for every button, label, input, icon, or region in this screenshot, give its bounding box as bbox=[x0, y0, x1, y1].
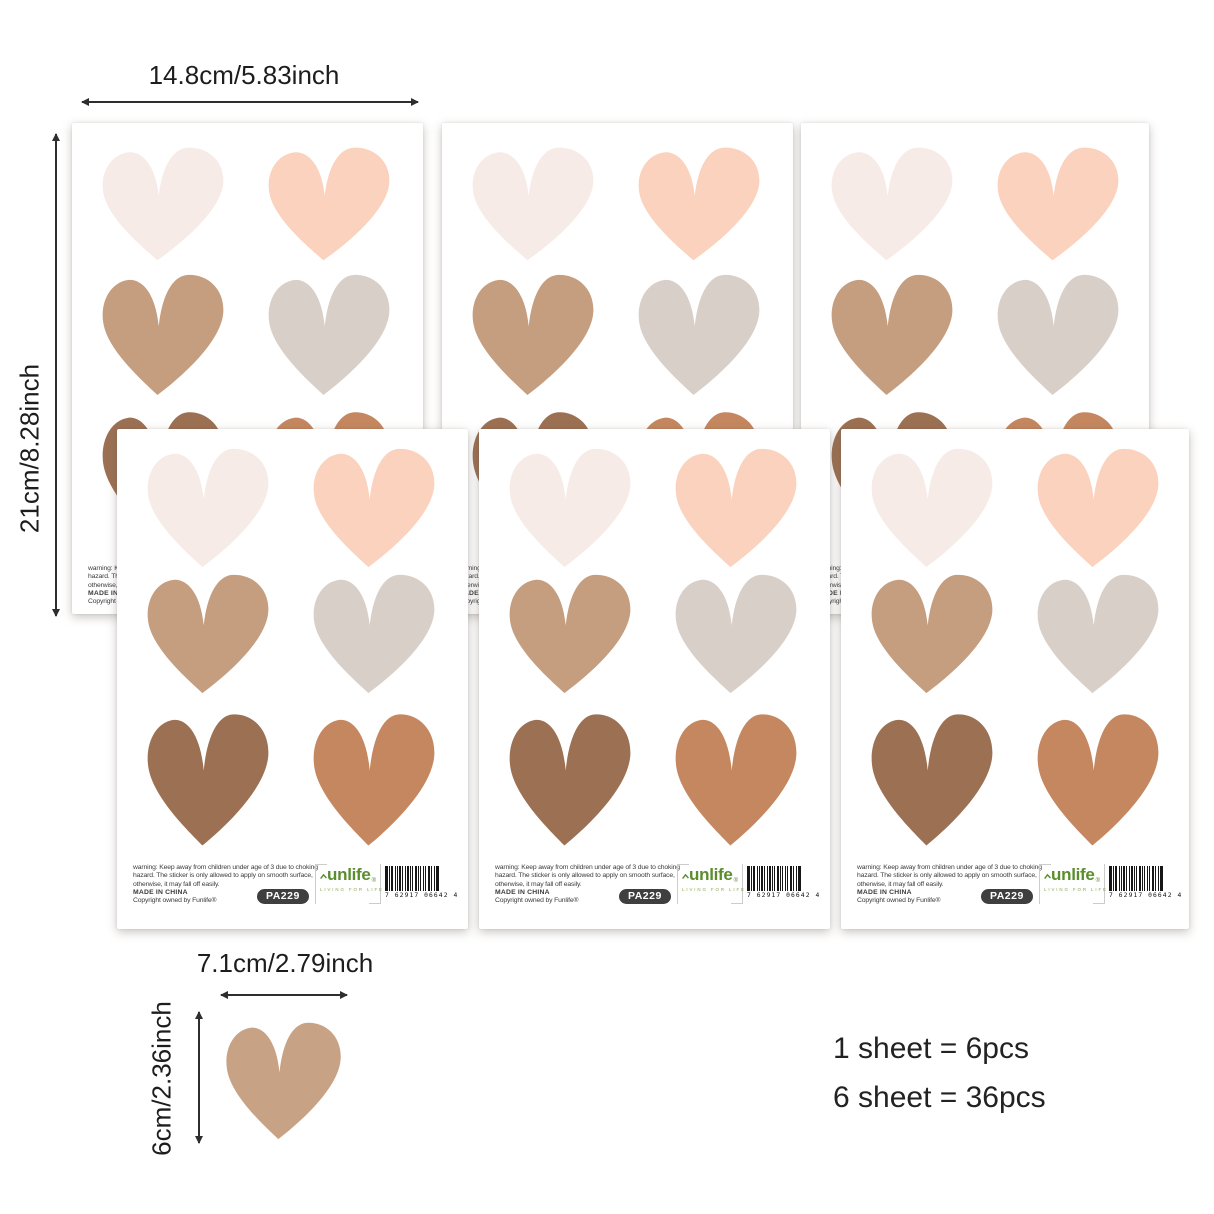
heart-sticker-peach bbox=[264, 143, 396, 265]
sticker-sheet-5: warning: Keep away from children under a… bbox=[479, 429, 830, 929]
sku-badge: PA229 bbox=[981, 889, 1033, 904]
roof-icon bbox=[682, 869, 689, 884]
barcode-digits: 7 62917 06642 4 bbox=[747, 892, 811, 899]
sheet-height-label: 21cm/8.28inch bbox=[15, 289, 46, 609]
warning-line: hazard. The sticker is only allowed to a… bbox=[495, 872, 680, 880]
registered-mark: ® bbox=[1096, 878, 1100, 884]
logo-wordmark: unlife bbox=[1051, 866, 1095, 884]
barcode: 7 62917 06642 4 bbox=[385, 866, 449, 899]
heart-sticker-peach bbox=[671, 444, 803, 572]
registered-mark: ® bbox=[734, 878, 738, 884]
logo-tagline: LIVING FOR LIFE bbox=[320, 887, 376, 892]
heart-sticker-greige bbox=[1033, 570, 1165, 698]
heart-sticker-terracotta bbox=[671, 709, 803, 851]
logo-tagline: LIVING FOR LIFE bbox=[682, 887, 738, 892]
warning-line: otherwise, it may fall off easily. bbox=[857, 881, 1042, 889]
heart-sticker-peach bbox=[309, 444, 441, 572]
sku-badge: PA229 bbox=[619, 889, 671, 904]
warning-line: warning: Keep away from children under a… bbox=[495, 864, 680, 872]
single-heart-sticker bbox=[222, 1018, 347, 1144]
heart-sticker-greige bbox=[634, 270, 766, 400]
funlife-logo: unlife ® LIVING FOR LIFE bbox=[315, 864, 381, 904]
heart-height-label: 6cm/2.36inch bbox=[147, 979, 178, 1179]
heart-sticker-tan bbox=[867, 570, 999, 698]
barcode-bars bbox=[747, 866, 811, 891]
warning-line: hazard. The sticker is only allowed to a… bbox=[133, 872, 318, 880]
sheet-footer: warning: Keep away from children under a… bbox=[133, 861, 452, 907]
count-line-2: 6 sheet = 36pcs bbox=[833, 1073, 1046, 1122]
funlife-logo: unlife ® LIVING FOR LIFE bbox=[677, 864, 743, 904]
logo-wordmark: unlife bbox=[689, 866, 733, 884]
logo-wordmark: unlife bbox=[327, 866, 371, 884]
roof-icon bbox=[1044, 869, 1051, 884]
heart-sticker-peach bbox=[993, 143, 1125, 265]
heart-sticker-greige bbox=[993, 270, 1125, 400]
logo-tagline: LIVING FOR LIFE bbox=[1044, 887, 1100, 892]
heart-sticker-blush bbox=[98, 143, 230, 265]
sheet-footer: warning: Keep away from children under a… bbox=[495, 861, 814, 907]
heart-sticker-greige bbox=[309, 570, 441, 698]
heart-sticker-blush bbox=[827, 143, 959, 265]
heart-sticker-blush bbox=[505, 444, 637, 572]
heart-sticker-blush bbox=[867, 444, 999, 572]
funlife-logo: unlife ® LIVING FOR LIFE bbox=[1039, 864, 1105, 904]
barcode-bars bbox=[1109, 866, 1173, 891]
heart-width-arrow bbox=[221, 994, 347, 996]
heart-sticker-peach bbox=[1033, 444, 1165, 572]
piece-counts: 1 sheet = 6pcs 6 sheet = 36pcs bbox=[833, 1024, 1046, 1122]
heart-sticker-blush bbox=[468, 143, 600, 265]
sheet-width-label: 14.8cm/5.83inch bbox=[94, 60, 394, 91]
sheet-footer: warning: Keep away from children under a… bbox=[857, 861, 1173, 907]
heart-sticker-tan bbox=[827, 270, 959, 400]
barcode-digits: 7 62917 06642 4 bbox=[1109, 892, 1173, 899]
heart-sticker-brown bbox=[867, 709, 999, 851]
sheet-width-arrow bbox=[82, 101, 418, 103]
count-line-1: 1 sheet = 6pcs bbox=[833, 1024, 1046, 1073]
heart-sticker-brown bbox=[505, 709, 637, 851]
heart-sticker-tan bbox=[505, 570, 637, 698]
heart-sticker-tan bbox=[98, 270, 230, 400]
heart-width-label: 7.1cm/2.79inch bbox=[140, 948, 430, 979]
heart-sticker-blush bbox=[143, 444, 275, 572]
warning-line: hazard. The sticker is only allowed to a… bbox=[857, 872, 1042, 880]
barcode-digits: 7 62917 06642 4 bbox=[385, 892, 449, 899]
roof-icon bbox=[320, 869, 327, 884]
barcode: 7 62917 06642 4 bbox=[1109, 866, 1173, 899]
barcode: 7 62917 06642 4 bbox=[747, 866, 811, 899]
heart-sticker-terracotta bbox=[1033, 709, 1165, 851]
sticker-sheet-6: warning: Keep away from children under a… bbox=[841, 429, 1189, 929]
sticker-sheet-4: warning: Keep away from children under a… bbox=[117, 429, 468, 929]
heart-sticker-peach bbox=[634, 143, 766, 265]
sku-badge: PA229 bbox=[257, 889, 309, 904]
heart-sticker-terracotta bbox=[309, 709, 441, 851]
heart-sticker-greige bbox=[671, 570, 803, 698]
heart-sticker-brown bbox=[143, 709, 275, 851]
product-infographic: 14.8cm/5.83inch 21cm/8.28inch warning: K… bbox=[0, 0, 1214, 1214]
heart-sticker-tan bbox=[143, 570, 275, 698]
heart-sticker-greige bbox=[264, 270, 396, 400]
sheet-height-arrow bbox=[55, 134, 57, 616]
warning-line: otherwise, it may fall off easily. bbox=[495, 881, 680, 889]
barcode-bars bbox=[385, 866, 449, 891]
heart-height-arrow bbox=[198, 1012, 200, 1143]
warning-line: otherwise, it may fall off easily. bbox=[133, 881, 318, 889]
warning-line: warning: Keep away from children under a… bbox=[133, 864, 318, 872]
warning-line: warning: Keep away from children under a… bbox=[857, 864, 1042, 872]
heart-sticker-tan bbox=[468, 270, 600, 400]
registered-mark: ® bbox=[372, 878, 376, 884]
